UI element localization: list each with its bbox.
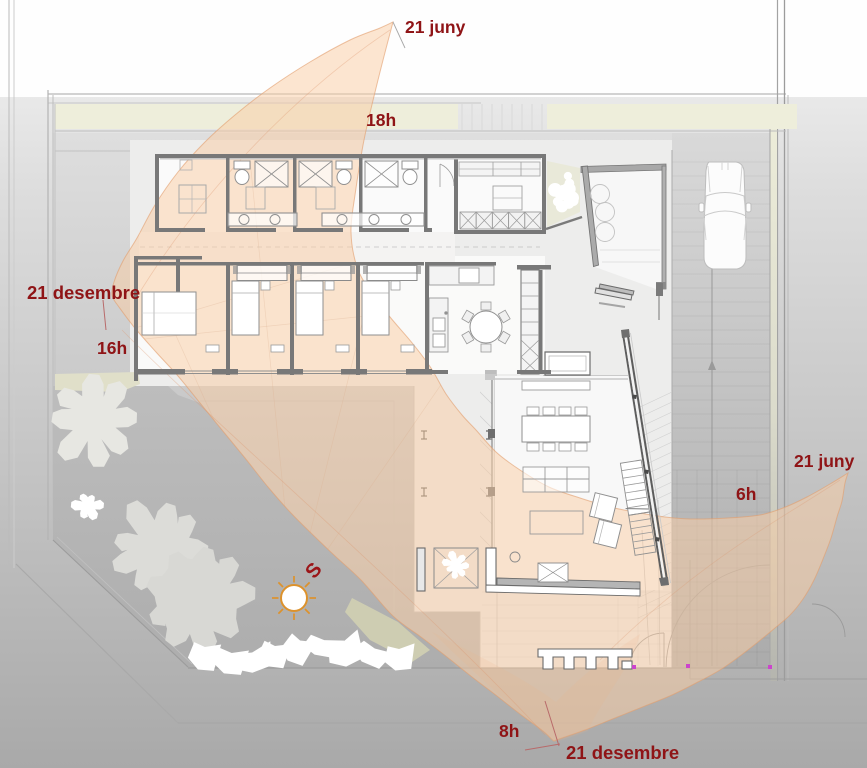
svg-text:21 desembre: 21 desembre xyxy=(27,282,140,303)
svg-text:8h: 8h xyxy=(499,721,519,741)
svg-text:21 desembre: 21 desembre xyxy=(566,742,679,763)
svg-text:21 juny: 21 juny xyxy=(794,451,855,471)
svg-text:18h: 18h xyxy=(366,110,396,130)
svg-text:16h: 16h xyxy=(97,338,127,358)
svg-text:21 juny: 21 juny xyxy=(405,17,466,37)
svg-text:6h: 6h xyxy=(736,484,756,504)
